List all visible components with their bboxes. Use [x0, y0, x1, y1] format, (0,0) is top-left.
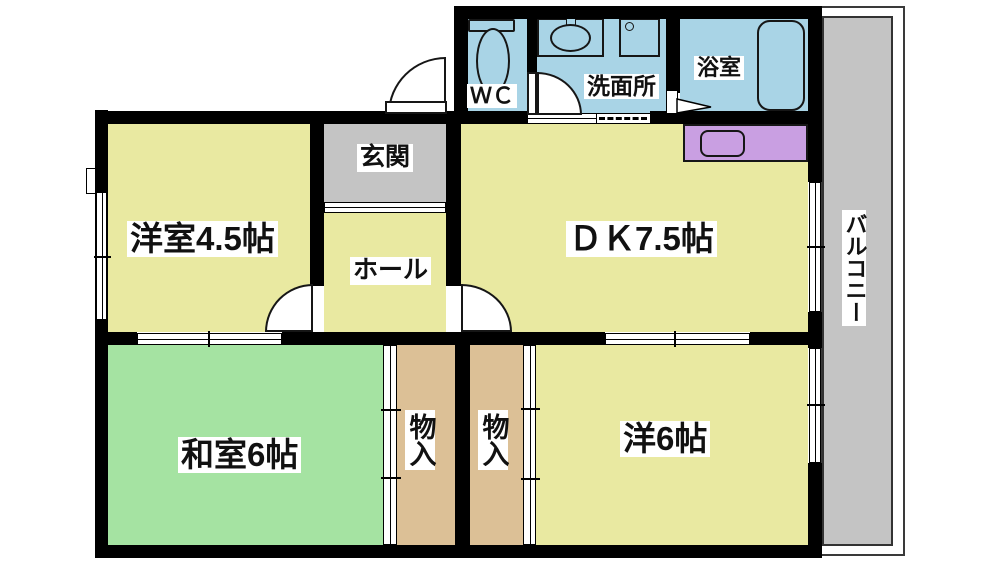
wall-closet-divider [455, 345, 470, 545]
wall-west45-hall [310, 124, 324, 286]
wall-right-lower [808, 463, 822, 558]
wall-mid-a [95, 332, 137, 345]
label-closet-right: 物入 [478, 410, 508, 470]
washing-machine-knob-icon [625, 22, 634, 31]
wc-door [527, 72, 537, 115]
label-japanese-6: 和室6帖 [178, 437, 301, 473]
label-closet-left: 物入 [405, 410, 435, 470]
wall-under-wc [468, 111, 527, 124]
wall-top-section-top [454, 6, 822, 19]
window-west6-balcony [809, 348, 821, 463]
entrance-door [385, 101, 447, 114]
wall-mid-c [750, 332, 808, 345]
wall-washroom-bathroom [666, 18, 680, 93]
label-dining-kitchen: ＤＫ7.5帖 [566, 221, 717, 257]
label-western-6: 洋6帖 [620, 421, 710, 457]
label-entrance: 玄関 [357, 144, 413, 172]
label-balcony: バルコニー [842, 210, 866, 326]
sliding-door-closet-west6 [523, 345, 536, 545]
wall-right-mid [808, 312, 822, 348]
window-dk-balcony [809, 182, 821, 312]
sliding-door-west45-japanese [137, 333, 282, 345]
wall-bottom [95, 545, 822, 558]
shutter-box [86, 168, 96, 194]
label-wc: ＷＣ [467, 84, 517, 108]
wall-top-section-left [454, 6, 468, 124]
label-western-4-5: 洋室4.5帖 [127, 221, 278, 257]
bathtub-icon [757, 20, 805, 111]
sliding-door-dk-west6 [605, 333, 750, 345]
sink-icon [550, 24, 591, 52]
label-bathroom: 浴室 [694, 56, 744, 80]
label-hall: ホール [350, 257, 431, 285]
window-west45-left [96, 192, 107, 320]
wall-wc-washroom [527, 18, 537, 73]
wall-right-upper [808, 6, 822, 182]
kitchen-sink-icon [700, 130, 745, 157]
wall-hall-dk [446, 124, 461, 286]
label-washroom: 洗面所 [584, 74, 659, 99]
wall-mid-b [282, 332, 605, 345]
bathroom-door-icon [676, 97, 714, 115]
sliding-door-japanese-closet [383, 345, 397, 545]
floor-plan: 洋室4.5帖 玄関 ホール ＤＫ7.5帖 和室6帖 物入 物入 洋6帖 ＷＣ 洗… [0, 0, 1000, 562]
sliding-door-entrance-hall [324, 202, 446, 213]
folding-door-washroom [597, 113, 650, 124]
